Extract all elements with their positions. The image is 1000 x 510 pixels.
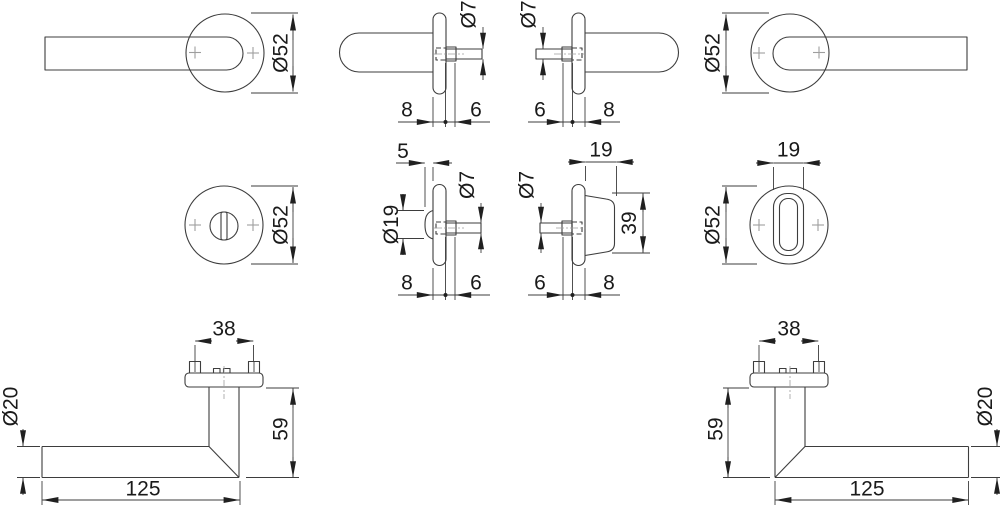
release-button (425, 211, 433, 240)
view-wc-rose-side-outside: 5 Ø19 Ø7 8 6 (380, 140, 490, 300)
dim-dot (444, 120, 448, 124)
dimension-spindle-diameter: Ø7 (518, 0, 544, 80)
turn-knob-profile (585, 196, 615, 256)
turn-knob-inner (780, 199, 798, 251)
dim-label-lever-length: 125 (849, 478, 884, 501)
dim-label-spindle-diameter: Ø7 (516, 171, 539, 199)
dim-label-rose-thickness: 8 (401, 272, 413, 295)
dim-label-lever-length: 125 (125, 478, 160, 501)
dimension-spindle-diameter: Ø7 (458, 0, 484, 80)
emergency-release-slot (221, 212, 227, 240)
dimension-rose-thickness-and-hub: 8 6 (398, 237, 490, 300)
dim-label-hub-protrusion: 6 (470, 272, 482, 295)
technical-drawing-page: Ø52 Ø7 8 6 (0, 0, 1000, 510)
dimension-knob-height: 39 (612, 193, 650, 253)
center-cross (813, 47, 825, 59)
dim-label-drop-height: 59 (705, 417, 728, 440)
dimension-button-diameter: Ø19 (380, 194, 424, 255)
turn-knob-outer (774, 194, 804, 256)
release-boss-circle (210, 212, 238, 240)
dim-label-rose-thickness: 8 (603, 99, 615, 122)
hub-tab (790, 369, 797, 374)
dimension-screw-spacing: 38 (759, 318, 819, 362)
dim-label-screw-spacing: 38 (777, 318, 800, 341)
lever-bar-outline (773, 37, 967, 70)
view-wc-rose-front-outside: Ø52 (185, 186, 298, 264)
hub-tab (780, 369, 787, 374)
dimension-button-protrusion: 5 (396, 140, 452, 207)
view-rose-side-outside: Ø7 8 6 (340, 0, 490, 127)
rose-profile (572, 13, 585, 94)
grip-outline (340, 33, 433, 72)
dimension-lever-length: 125 (42, 478, 240, 506)
dimension-rose-thickness-and-hub: 6 8 (528, 63, 620, 127)
dim-label-grip-diameter: Ø20 (0, 387, 23, 427)
mounting-plate (750, 373, 828, 387)
dim-dot (444, 293, 448, 297)
dim-label-rose-diameter: Ø52 (702, 33, 725, 73)
dim-label-knob-depth: 19 (589, 139, 612, 162)
dimension-spindle-diameter: Ø7 (456, 171, 481, 253)
view-wc-rose-front-inside: 19 Ø52 (702, 139, 829, 265)
dim-label-button-protrusion: 5 (397, 140, 409, 163)
view-lever-front-left: Ø52 (45, 13, 298, 93)
dimension-rose-thickness-and-hub: 8 6 (398, 63, 490, 127)
dimension-spindle-diameter: Ø7 (516, 171, 542, 253)
view-lever-profile-right: 38 59 Ø20 125 (705, 318, 1000, 506)
dim-label-hub-protrusion: 6 (534, 99, 546, 122)
center-cross (189, 219, 201, 231)
center-cross (753, 219, 765, 231)
rose-profile (572, 185, 585, 266)
center-cross (753, 47, 765, 59)
door-handle-technical-drawing: Ø52 Ø7 8 6 (0, 0, 1000, 510)
dimension-knob-depth: 19 (568, 139, 634, 197)
grip-outline (585, 33, 679, 72)
dimension-grip-diameter: Ø20 (971, 387, 1000, 495)
dimension-drop-height: 59 (705, 388, 771, 478)
dim-label-spindle-diameter: Ø7 (458, 0, 481, 28)
view-lever-front-right: Ø52 (702, 13, 968, 93)
dim-dot (571, 120, 575, 124)
dim-label-spindle-diameter: Ø7 (518, 0, 541, 28)
lever-profile-outline (42, 387, 239, 478)
lever-bar-outline (45, 37, 243, 70)
dim-label-drop-height: 59 (270, 417, 293, 440)
dim-label-rose-diameter: Ø52 (270, 205, 293, 245)
center-cross (812, 219, 824, 231)
view-wc-rose-side-inside: 19 39 Ø7 6 8 (516, 139, 651, 301)
dim-label-button-diameter: Ø19 (380, 205, 403, 245)
dimension-drop-height: 59 (246, 388, 299, 478)
dim-label-grip-diameter: Ø20 (974, 387, 997, 427)
view-rose-side-inside: Ø7 6 8 (518, 0, 679, 127)
rose-profile (433, 13, 446, 94)
dim-label-hub-protrusion: 6 (470, 99, 482, 122)
dim-label-hub-protrusion: 6 (534, 272, 546, 295)
dim-label-rose-diameter: Ø52 (702, 205, 725, 245)
dimension-rose-diameter: Ø52 (702, 186, 758, 264)
dimension-lever-length: 125 (775, 478, 969, 506)
rose-profile (433, 185, 446, 266)
dim-dot (571, 293, 575, 297)
lever-profile-outline (775, 387, 969, 478)
dim-label-screw-spacing: 38 (212, 318, 235, 341)
dim-label-rose-thickness: 8 (401, 99, 413, 122)
view-lever-profile-left: 38 Ø20 59 125 (0, 318, 299, 506)
dimension-grip-diameter: Ø20 (0, 387, 40, 495)
dimension-screw-spacing: 38 (195, 318, 254, 362)
center-cross (189, 47, 201, 59)
dim-label-knob-width: 19 (777, 139, 800, 162)
center-cross (247, 219, 259, 231)
dimension-knob-width: 19 (756, 139, 821, 191)
dim-label-rose-thickness: 8 (603, 272, 615, 295)
dim-label-rose-diameter: Ø52 (270, 33, 293, 73)
hub-tab (214, 369, 221, 374)
center-cross (247, 47, 259, 59)
hub-tab (224, 369, 231, 374)
dimension-rose-thickness-and-hub: 6 8 (528, 237, 620, 300)
dim-label-knob-height: 39 (618, 211, 641, 234)
dim-label-spindle-diameter: Ø7 (456, 171, 479, 199)
